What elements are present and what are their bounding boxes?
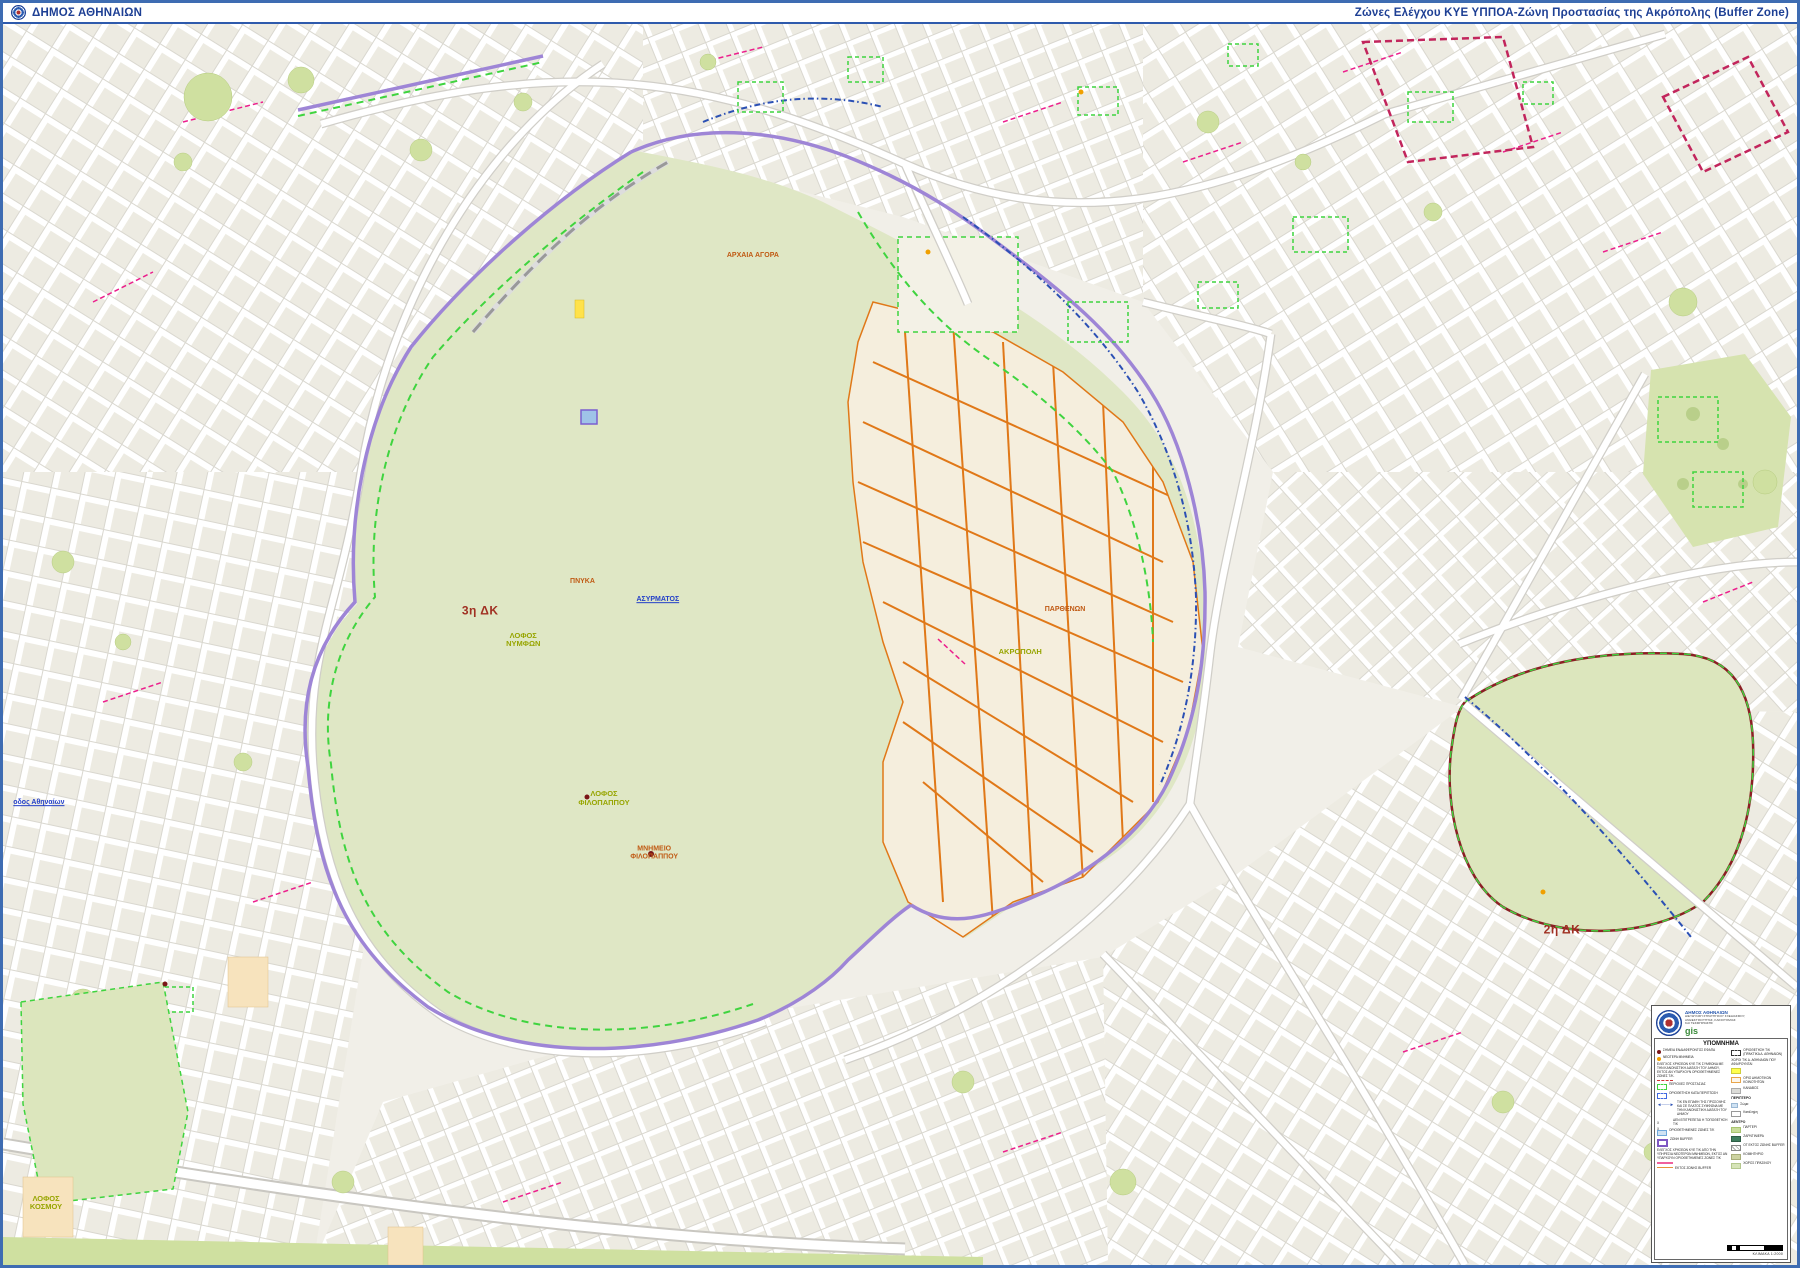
legend-entry: ΕΛΕΓΧΟΣ ΧΡΗΣΕΩΝ ΚΥΕ Τ/Κ ΣΥΜΦΩΝΑ ΜΕ ΤΗΝ Κ… [1657,1063,1728,1081]
legend-entry: ΚΟΙΜΗΤΗΡΙΟ [1731,1153,1785,1160]
legend-entry-label: ΟΤ ΕΚΤΟΣ ΖΩΝΗΣ BUFFER [1743,1144,1784,1148]
legend-scale: ΚΛΙΜΑΚΑ 1:2000 [1657,1243,1785,1257]
legend-entry-label: ΚΟΙΜΗΤΗΡΙΟ [1743,1153,1763,1157]
athens-emblem-icon [11,5,26,20]
map-label: ΠΝΥΚΑ [570,579,595,587]
legend-entry-label: ΝΕΩΤΕΡΑ ΜΝΗΜΕΙΑ [1663,1056,1694,1060]
map-label: ΑΣΥΡΜΑΤΟΣ [636,596,679,604]
box-darkgreen-swatch-icon [1731,1136,1741,1142]
legend-panel: ΔΗΜΟΣ ΑΘΗΝΑΙΩΝ ΔΙΕΥΘΥΝΣΗ ΣΤΡΑΤΗΓΙΚΟΥ ΣΧΕ… [1651,1005,1791,1263]
legend-entry: Κατάληψη [1731,1111,1785,1118]
line-pink-swatch-icon [1657,1162,1673,1164]
map-document: ΔΗΜΟΣ ΑΘΗΝΑΙΩΝ Ζώνες Ελέγχου ΚΥΕ ΥΠΠΟΑ-Ζ… [0,0,1800,1268]
legend-entry-label: ΕΚΤΟΣ ΖΩΝΗΣ BUFFER [1675,1167,1711,1171]
legend-entry: ΝΕΩΤΕΡΑ ΜΝΗΜΕΙΑ [1657,1056,1728,1061]
scale-value: 1:2000 [1771,1252,1783,1256]
legend-entry: ΟΤ ΕΚΤΟΣ ΖΩΝΗΣ BUFFER [1731,1144,1785,1151]
box-dashed-black-swatch-icon [1731,1050,1741,1056]
legend-entry-label: ΠΑΡΤΕΡΙ [1743,1126,1757,1130]
dashes-red-swatch-icon [1657,1080,1673,1081]
line-orange-swatch-icon [1657,1167,1673,1168]
legend-entry-label: Κατάληψη [1743,1111,1757,1115]
legend-entry: Σώμα [1731,1103,1785,1109]
map-label: ΛΟΦΟΣ ΦΙΛΟΠΑΠΠΟΥ [578,790,629,807]
box-lightblue-swatch-icon [1657,1130,1667,1136]
legend-entry-label: Τ/Κ ΕΝ ΕΠΑΦΗ ΤΗΣ ΠΡΟΣΟΨΗΣ ΚΑΙ ΣΕ ΠΛΑΤΟΣ … [1677,1101,1728,1116]
legend-entry-label: ΕΛΕΓΧΟΣ ΧΡΗΣΕΩΝ ΚΥΕ Τ/Κ ΣΥΜΦΩΝΑ ΜΕ ΤΗΝ Κ… [1657,1063,1728,1078]
map-label: ΠΑΡΘΕΝΩΝ [1045,606,1086,614]
map-label: ΑΡΧΑΙΑ ΑΓΟΡΑ [727,252,779,260]
legend-section-label: ΠΕΡΙΠΤΕΡΟ [1731,1096,1751,1100]
dot-darkred-swatch-icon [1657,1050,1661,1054]
map-label: οδος Αθηναίων [13,800,64,808]
legend-entry-label: Σώμα [1740,1103,1748,1107]
box-orange-border-swatch-icon [1731,1077,1741,1083]
legend-org-header: ΔΗΜΟΣ ΑΘΗΝΑΙΩΝ ΔΙΕΥΘΥΝΣΗ ΣΤΡΑΤΗΓΙΚΟΥ ΣΧΕ… [1654,1008,1788,1037]
legend-entry-label: ΠΕΡΙΟΧΕΣ ΠΡΟΣΤΑΣΙΑΣ [1669,1083,1706,1087]
legend-column-right: ΟΡΙΟΘΕΤΗΣΗ Τ/Κ (ΠΡΑΚΤΙΚΑ Δ. ΑΘΗΝΑΙΩΝ)ΧΩΡ… [1731,1049,1785,1243]
legend-entry: Τ/Κ ΕΝ ΕΠΑΦΗ ΤΗΣ ΠΡΟΣΟΨΗΣ ΚΑΙ ΣΕ ΠΛΑΤΟΣ … [1657,1101,1728,1116]
scale-bar-icon [1727,1245,1783,1251]
box-lightblue-small-swatch-icon [1731,1103,1738,1108]
legend-entry-label: ΕΛΕΓΧΟΣ ΧΡΗΣΕΩΝ ΚΥΕ Τ/Κ ΑΠΟ ΤΗΝ ΥΠΗΡΕΣΙΑ… [1657,1149,1728,1161]
legend-entry-label: ΟΡΙΟΘΕΤΗΣΗ Τ/Κ (ΠΡΑΚΤΙΚΑ Δ. ΑΘΗΝΑΙΩΝ) [1743,1049,1785,1057]
legend-entry: ΕΚΤΟΣ ΖΩΝΗΣ BUFFER [1657,1167,1728,1171]
legend-entry: ΚΑΝΑΒΟΣ [1731,1087,1785,1094]
scale-label: ΚΛΙΜΑΚΑ [1753,1252,1770,1256]
legend-entry-label: ΔΕΝ ΕΠΙΤΡΕΠΕΤΑΙ Η ΤΟΠΟΘΕΤΗΣΗ Τ/Κ [1673,1119,1728,1127]
box-lightgreen-swatch-icon [1731,1127,1741,1133]
legend-entry: ΧΩΡΟΣ ΠΡΑΣΙΝΟΥ [1731,1162,1785,1169]
legend-entry: ΟΡΙΟ ΔΗΜΟΤΙΚΩΝ ΚΟΙΝΟΤΗΤΩΝ [1731,1077,1785,1085]
map-label: ΛΟΦΟΣ ΚΟΣΜΟΥ [30,1195,62,1212]
map-label: ΛΟΦΟΣ ΝΥΜΦΩΝ [506,631,540,648]
box-hatched-swatch-icon [1731,1145,1741,1151]
map-label: ΑΚΡΟΠΟΛΗ [999,648,1042,656]
box-yellow-swatch-icon [1731,1068,1741,1074]
legend-entry: ΧΩΡΟΙ Τ/Κ Δ. ΑΘΗΝΑΙΩΝ ΠΟΥ ΑΦΑΙΡΟΥΝΤΑΙ [1731,1059,1785,1074]
legend-entry: ΣΗΜΕΙΑ ΕΝΔΙΑΦΕΡΟΝΤΟΣ ΕΦΑΠΑ [1657,1049,1728,1054]
legend-entry-label: ΟΡΙΟΘΕΤΗΣΗ ΚΑΤΑ ΠΕΡΙΠΤΩΣΗ [1669,1092,1718,1096]
legend-entry: ΖΩΝΗ BUFFER [1657,1138,1728,1147]
legend-title: ΥΠΟΜΝΗΜΑ [1657,1041,1785,1047]
legend-entry: ΟΡΙΟΘΕΤΗΣΗ ΚΑΤΑ ΠΕΡΙΠΤΩΣΗ [1657,1092,1728,1099]
legend-entry: ΟΡΙΟΘΕΤΗΣΗ Τ/Κ (ΠΡΑΚΤΙΚΑ Δ. ΑΘΗΝΑΙΩΝ) [1731,1049,1785,1057]
box-white-swatch-icon [1731,1111,1741,1117]
map-label: 2η ΔΚ [1544,923,1581,936]
title-bar: ΔΗΜΟΣ ΑΘΗΝΑΙΩΝ Ζώνες Ελέγχου ΚΥΕ ΥΠΠΟΑ-Ζ… [3,3,1797,24]
legend-section-label: ΔΕΝΤΡΟ [1731,1120,1745,1124]
legend-column-left: ΣΗΜΕΙΑ ΕΝΔΙΑΦΕΡΟΝΤΟΣ ΕΦΑΠΑΝΕΩΤΕΡΑ ΜΝΗΜΕΙ… [1657,1049,1728,1243]
legend-entry: ΕΛΕΓΧΟΣ ΧΡΗΣΕΩΝ ΚΥΕ Τ/Κ ΑΠΟ ΤΗΝ ΥΠΗΡΕΣΙΑ… [1657,1149,1728,1164]
legend-entry-label: ΣΗΜΕΙΑ ΕΝΔΙΑΦΕΡΟΝΤΟΣ ΕΦΑΠΑ [1663,1049,1715,1053]
legend-entry-label: ΟΡΙΟ ΔΗΜΟΤΙΚΩΝ ΚΟΙΝΟΤΗΤΩΝ [1743,1077,1785,1085]
map-label: ΜΝΗΜΕΙΟ ΦΙΛΟΠΑΠΠΟΥ [630,845,678,860]
map-labels-layer: ΠΑΡΘΕΝΩΝΑΚΡΟΠΟΛΗ3η ΔΚ2η ΔΚΠΝΥΚΑΛΟΦΟΣ ΝΥΜ… [3,24,1797,1265]
athens-emblem-icon [1656,1010,1682,1036]
legend-entry-label: ΧΩΡΟΣ ΠΡΑΣΙΝΟΥ [1743,1162,1771,1166]
map-label: 3η ΔΚ [462,604,499,617]
map-canvas[interactable]: ΠΑΡΘΕΝΩΝΑΚΡΟΠΟΛΗ3η ΔΚ2η ΔΚΠΝΥΚΑΛΟΦΟΣ ΝΥΜ… [3,24,1797,1265]
legend-entry-label: ΧΩΡΟΙ Τ/Κ Δ. ΑΘΗΝΑΙΩΝ ΠΟΥ ΑΦΑΙΡΟΥΝΤΑΙ [1731,1059,1785,1067]
legend-entry: ΠΕΡΙΠΤΕΡΟ [1731,1096,1785,1100]
box-dashed-blue-swatch-icon [1657,1093,1667,1099]
municipality-title: ΔΗΜΟΣ ΑΘΗΝΑΙΩΝ [32,7,142,19]
legend-entry-label: ΖΑΡΝΤΙΝΙΕΡΑ [1743,1135,1764,1139]
arrow-blue-swatch-icon [1657,1102,1675,1108]
legend-body: ΥΠΟΜΝΗΜΑ ΣΗΜΕΙΑ ΕΝΔΙΑΦΕΡΟΝΤΟΣ ΕΦΑΠΑΝΕΩΤΕ… [1654,1038,1788,1260]
legend-entry: ΔΕΝΤΡΟ [1731,1120,1785,1124]
legend-entry: ΠΑΡΤΕΡΙ [1731,1126,1785,1133]
legend-entry: ΠΕΡΙΟΧΕΣ ΠΡΟΣΤΑΣΙΑΣ [1657,1083,1728,1090]
box-gray-swatch-icon [1731,1088,1741,1094]
box-purple-swatch-icon [1657,1139,1668,1147]
box-dashed-green-swatch-icon [1657,1084,1667,1090]
xx-swatch-icon [1657,1120,1671,1126]
legend-entry-label: ΖΩΝΗ BUFFER [1670,1138,1693,1142]
box-olive-swatch-icon [1731,1154,1741,1160]
legend-entry-label: ΚΑΝΑΒΟΣ [1743,1087,1758,1091]
legend-entry-label: ΟΡΙΟΘΕΤΗΜΕΝΕΣ ΖΩΝΕΣ Τ/Κ [1669,1129,1714,1133]
dot-orange-swatch-icon [1657,1057,1661,1061]
map-title: Ζώνες Ελέγχου ΚΥΕ ΥΠΠΟΑ-Ζώνη Προστασίας … [1355,7,1789,19]
gis-logo: gis [1685,1027,1745,1036]
box-palegreen-swatch-icon [1731,1163,1741,1169]
legend-entry: ΖΑΡΝΤΙΝΙΕΡΑ [1731,1135,1785,1142]
legend-entry: ΔΕΝ ΕΠΙΤΡΕΠΕΤΑΙ Η ΤΟΠΟΘΕΤΗΣΗ Τ/Κ [1657,1119,1728,1127]
legend-entry: ΟΡΙΟΘΕΤΗΜΕΝΕΣ ΖΩΝΕΣ Τ/Κ [1657,1129,1728,1136]
